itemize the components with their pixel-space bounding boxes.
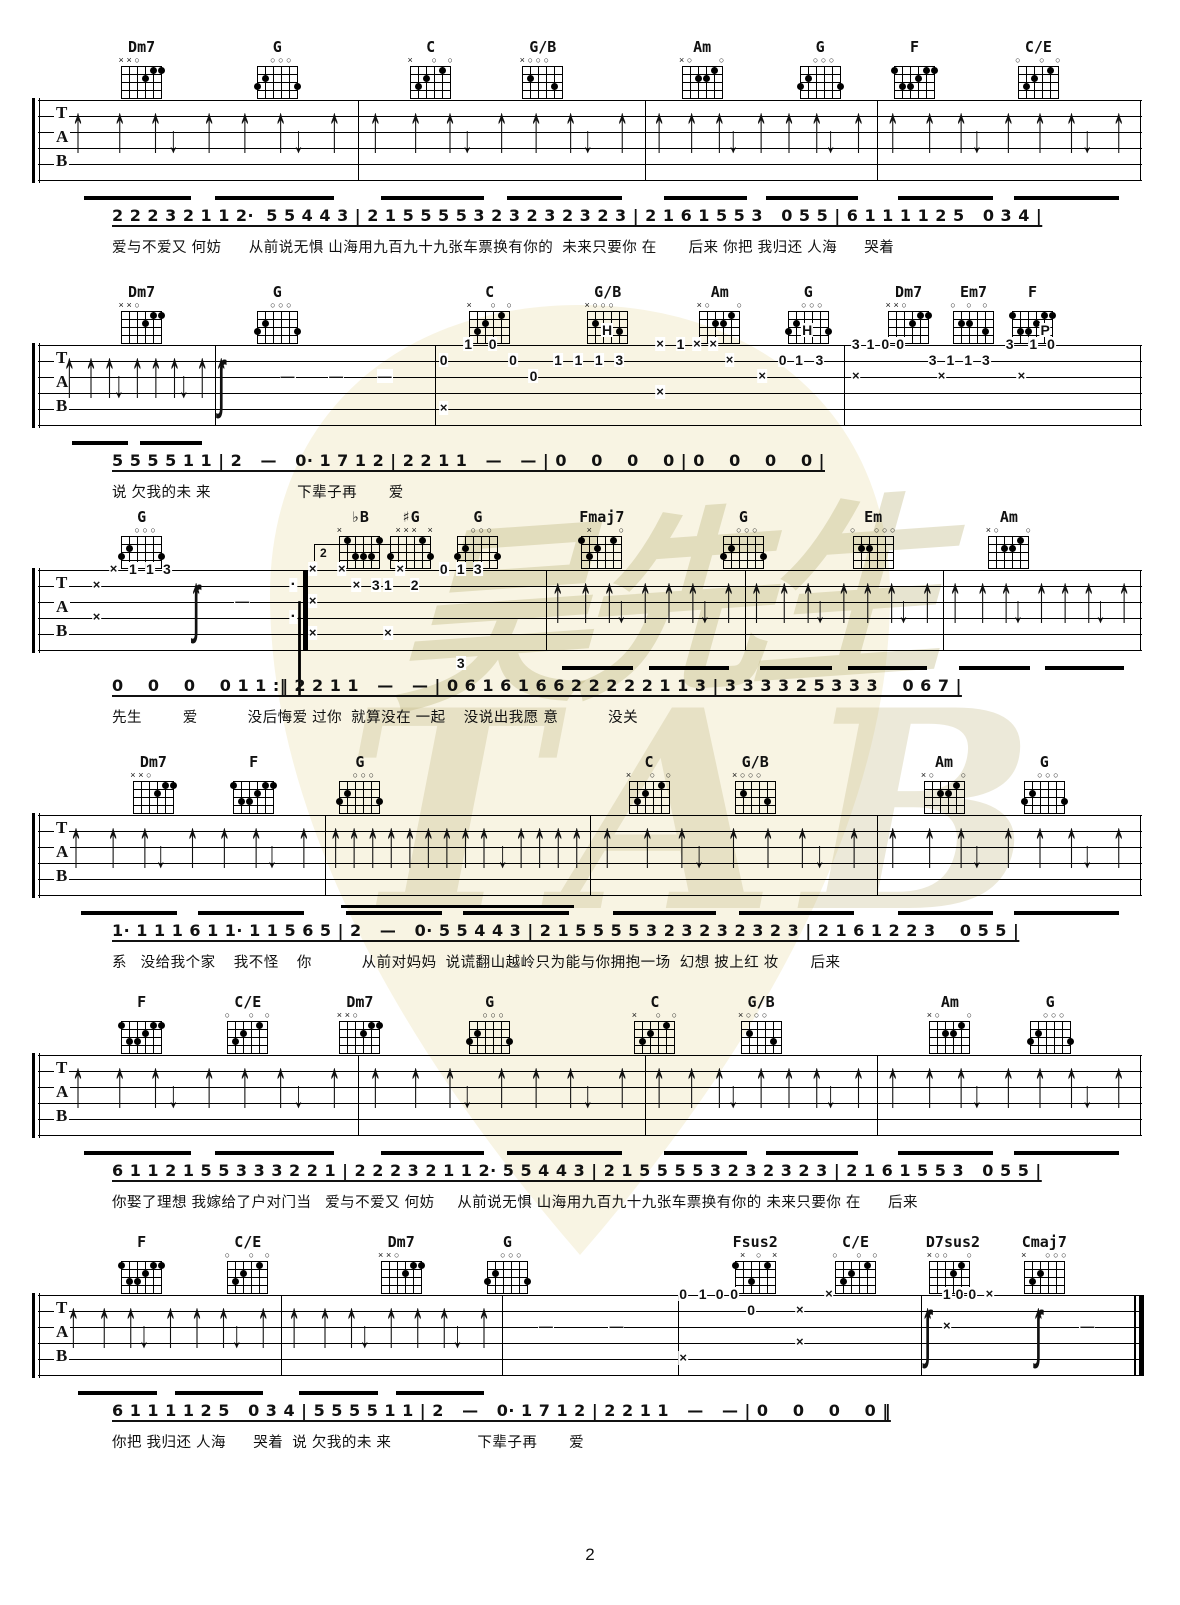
chord-name: G	[253, 285, 301, 300]
chord-dot	[958, 1022, 965, 1029]
chord-open-mark: ○	[737, 301, 742, 310]
strum-up-arrow: ↑	[921, 564, 934, 632]
fret-number: 1	[463, 337, 473, 351]
chord-dot	[925, 312, 932, 319]
chord-open-mark: ×	[632, 1011, 637, 1020]
chord-open-mark: ○	[656, 1011, 661, 1020]
chord-open-mark: ○	[516, 1251, 521, 1260]
chord-dot	[770, 1038, 777, 1045]
chord-open-mark: ○	[1053, 1251, 1058, 1260]
chord-open-mark: ○	[856, 1251, 861, 1260]
beam-line	[140, 441, 202, 445]
chord-open-mark: ×	[520, 56, 525, 65]
tab-clef-letter: B	[54, 867, 69, 885]
strum-up-arrow: ↑	[63, 339, 76, 407]
fret-number: 3	[981, 353, 991, 367]
beam-line	[649, 666, 728, 670]
fret-number: 0	[967, 1287, 977, 1301]
tab-system: FC/E○○○Dm7××○G○○○Fsus2×○×C/E○○○D7sus2×○○…	[0, 1235, 1180, 1475]
strum-up-arrow: ↑	[149, 94, 162, 162]
chord-dot	[256, 1262, 263, 1269]
chord-dot	[1041, 312, 1048, 319]
strum-down-arrow: ↓	[728, 118, 739, 162]
strum-up-arrow: ↑	[71, 94, 84, 162]
chord-open-mark: ○	[890, 526, 895, 535]
chord-name: G	[1020, 755, 1068, 770]
strum-up-arrow: ↑	[570, 809, 583, 877]
strum-up-arrow: ↑	[203, 94, 216, 162]
strum-up-arrow: ↑	[190, 1289, 203, 1357]
chord-open-mark: ○	[134, 301, 139, 310]
chord-open-mark: ○	[146, 771, 151, 780]
strum-up-arrow: ↑	[250, 809, 263, 877]
strum-up-arrow: ↑	[131, 339, 144, 407]
chord-diagram: C/E○○○	[832, 1235, 880, 1294]
beam-line	[396, 1391, 484, 1395]
strum-up-arrow: ↑	[495, 1049, 508, 1117]
strum-up-arrow: ↑	[802, 564, 815, 632]
chord-open-mark: ○	[431, 56, 436, 65]
strum-up-arrow: ↑	[409, 1049, 422, 1117]
chord-open-mark: ○	[286, 56, 291, 65]
strum-up-arrow: ↑	[238, 94, 251, 162]
strum-up-arrow: ↑	[885, 564, 898, 632]
beam-line	[463, 911, 569, 915]
strum-up-arrow: ↑	[852, 1049, 865, 1117]
chord-open-mark: ○	[506, 301, 511, 310]
dead-note-mark: ×	[757, 369, 767, 383]
strum-up-arrow: ↑	[71, 1049, 84, 1117]
staff-line	[38, 425, 1142, 426]
chord-name: F	[230, 755, 278, 770]
chord-dot	[610, 537, 617, 544]
chord-dot	[848, 1270, 855, 1277]
beam-line	[664, 196, 747, 200]
dead-note-mark: ×	[851, 369, 861, 383]
strum-down-arrow: ↓	[168, 118, 179, 162]
arpeggio-squiggle: ʃ	[193, 580, 200, 643]
chord-open-mark: ○	[874, 526, 879, 535]
chord-name: C/E	[224, 1235, 272, 1250]
tab-staff: TAB↑↑↑↓↑↑↑↓↑↑↑↑↓↑↑↑↓↑↑↑↑↓↑↑↑↓↑↑↑↑↓↑↑↑↓↑	[38, 100, 1142, 181]
strum-down-arrow: ↓	[616, 588, 627, 632]
strum-up-arrow: ↑	[685, 94, 698, 162]
chord-dot	[154, 790, 161, 797]
fret-number: 0	[778, 353, 788, 367]
chord-dot	[462, 545, 469, 552]
chord-dot	[931, 67, 938, 74]
strum-down-arrow: ↓	[898, 588, 909, 632]
strum-down-arrow: ↓	[359, 1313, 370, 1357]
strum-up-arrow: ↑	[69, 809, 82, 877]
strum-up-arrow: ↑	[164, 1289, 177, 1357]
staff-line	[38, 180, 1142, 181]
staff-line	[38, 1135, 1142, 1136]
chord-dot	[942, 1030, 949, 1037]
strum-up-arrow: ↑	[551, 564, 564, 632]
chord-dot	[439, 67, 446, 74]
strum-up-arrow: ↑	[459, 809, 472, 877]
chord-open-mark: ○	[487, 526, 492, 535]
tab-clef-letter: A	[54, 598, 70, 616]
chord-name: Dm7	[118, 285, 166, 300]
strum-up-arrow: ↑	[1002, 809, 1015, 877]
final-barline	[1134, 1295, 1144, 1376]
rest-dash: —	[328, 369, 344, 383]
strum-up-arrow: ↑	[366, 809, 379, 877]
strum-up-arrow: ↑	[653, 1049, 666, 1117]
chord-dot	[634, 798, 641, 805]
dead-note-mark: ×	[352, 578, 362, 592]
strum-up-arrow: ↑	[886, 1049, 899, 1117]
chord-dot	[1049, 312, 1056, 319]
fret-number: 1	[942, 1287, 952, 1301]
chord-open-mark: ○	[1059, 1011, 1064, 1020]
fret-number: 1	[676, 337, 686, 351]
chord-dot	[592, 320, 599, 327]
strum-up-arrow: ↑	[124, 1289, 137, 1357]
page-number: 2	[585, 1545, 594, 1565]
chord-dot	[958, 320, 965, 327]
chord-name: G	[796, 40, 844, 55]
beam-line	[898, 1151, 993, 1155]
chord-open-mark: ×	[986, 526, 991, 535]
strum-up-arrow: ↑	[1065, 809, 1078, 877]
strum-up-arrow: ↑	[113, 1049, 126, 1117]
strum-up-arrow: ↑	[1082, 564, 1095, 632]
chord-open-mark: ○	[935, 1251, 940, 1260]
chord-dot	[1047, 67, 1054, 74]
chord-dot	[1017, 537, 1024, 544]
tab-clef-letter: B	[54, 1107, 69, 1125]
chord-open-mark: ○	[756, 771, 761, 780]
chord-dot	[950, 1030, 957, 1037]
chord-open-mark: ○	[1045, 771, 1050, 780]
fret-number: 1	[946, 353, 956, 367]
staff-line	[38, 1343, 1142, 1344]
tab-clef-letter: T	[54, 104, 69, 122]
rest-dash: —	[234, 594, 250, 608]
chord-open-mark: ×	[138, 771, 143, 780]
chord-dot	[647, 1030, 654, 1037]
strum-up-arrow: ↑	[755, 1049, 768, 1117]
chord-open-mark: ○	[270, 56, 275, 65]
chord-name: Dm7	[129, 755, 177, 770]
chord-dot	[1009, 545, 1016, 552]
chord-open-mark: ×	[738, 1011, 743, 1020]
strum-up-arrow: ↑	[616, 94, 629, 162]
tab-clef-letter: B	[54, 152, 69, 170]
strum-up-arrow: ↑	[478, 809, 491, 877]
chord-dot	[950, 1270, 957, 1277]
beam-line	[664, 1151, 747, 1155]
chord-open-mark: ×	[403, 526, 408, 535]
chord-dot	[492, 1270, 499, 1277]
chord-name: C/E	[224, 995, 272, 1010]
beam-line	[562, 666, 634, 670]
strum-down-arrow: ↓	[825, 1073, 836, 1117]
chord-open-mark: ×	[126, 301, 131, 310]
strum-up-arrow: ↑	[203, 1049, 216, 1117]
strum-up-arrow: ↑	[329, 809, 342, 877]
lyrics-line: 系 没给我个家 我不怪 你 从前对妈妈 说谎翻山越岭只为能与你拥抱一场 幻想 披…	[112, 951, 841, 972]
strum-up-arrow: ↑	[861, 564, 874, 632]
strum-up-arrow: ↑	[217, 1289, 230, 1357]
dead-note-mark: ×	[824, 1287, 834, 1301]
strum-up-arrow: ↑	[478, 1289, 491, 1357]
chord-name: C/E	[1014, 40, 1062, 55]
strum-up-arrow: ↑	[949, 564, 962, 632]
strum-up-arrow: ↑	[495, 94, 508, 162]
tab-clef-letter: B	[54, 622, 69, 640]
strum-down-arrow: ↓	[1082, 1073, 1093, 1117]
strum-up-arrow: ↑	[403, 809, 416, 877]
chord-dot	[793, 320, 800, 327]
chord-open-mark: ○	[967, 1251, 972, 1260]
rest-dash: —	[280, 369, 296, 383]
measure-barline	[645, 1055, 646, 1136]
chord-name: G	[454, 510, 502, 525]
tab-system: G○○○♭B×♯G××××G○○○Fmaj7×○G○○○Em○○○○Am×○○T…	[0, 510, 1180, 750]
chord-open-mark: ○	[744, 526, 749, 535]
chord-name: G	[336, 755, 384, 770]
chord-open-mark: ○	[498, 1011, 503, 1020]
staff-line	[38, 1375, 1142, 1376]
chord-open-mark: ×	[1021, 1251, 1026, 1260]
chord-dot	[1001, 545, 1008, 552]
chord-dot	[695, 75, 702, 82]
chord-dot	[262, 320, 269, 327]
chord-dot	[825, 328, 832, 335]
chord-dot	[402, 1270, 409, 1277]
strum-up-arrow: ↑	[288, 1289, 301, 1357]
strum-down-arrow: ↓	[462, 118, 473, 162]
fret-number: 0	[729, 1287, 739, 1301]
chord-open-mark: ×	[626, 771, 631, 780]
strum-up-arrow: ↑	[533, 809, 546, 877]
strum-down-arrow: ↓	[293, 1073, 304, 1117]
fret-number: 1	[553, 353, 563, 367]
measure-barline	[358, 1055, 359, 1136]
beam-line	[848, 666, 927, 670]
fret-number: 0	[439, 562, 449, 576]
chord-grid: ×○×	[735, 1261, 776, 1294]
chord-open-mark: ○	[935, 1011, 940, 1020]
chord-open-mark: ×	[927, 1011, 932, 1020]
tab-staff: TAB×××113↑ʃ—··×××××31×2×0133↑↑↑↓↑↑↑↓↑↑↑↑…	[38, 570, 1142, 651]
chord-open-mark: ○	[265, 1251, 270, 1260]
strum-up-arrow: ↑	[601, 809, 614, 877]
chord-open-mark: ○	[1037, 771, 1042, 780]
fret-number: 0	[529, 369, 539, 383]
chord-name: ♭B	[336, 510, 384, 525]
chord-open-mark: ×	[740, 1251, 745, 1260]
strum-down-arrow: ↓	[452, 1313, 463, 1357]
chord-dot	[917, 312, 924, 319]
chord-dot	[937, 790, 944, 797]
chord-open-mark: ○	[1039, 56, 1044, 65]
chord-name: C	[625, 755, 673, 770]
measure-barline	[745, 570, 746, 651]
chord-open-mark: ○	[1055, 56, 1060, 65]
chord-open-mark: ○	[490, 301, 495, 310]
chord-diagram: Fsus2×○×	[731, 1235, 779, 1294]
chord-open-mark: ×	[732, 771, 737, 780]
beam-line	[381, 196, 484, 200]
strum-up-arrow: ↑	[257, 1289, 270, 1357]
measure-barline	[844, 345, 845, 426]
measure-barline	[943, 570, 944, 651]
chord-dot	[1035, 1030, 1042, 1037]
fret-number: 0	[1046, 337, 1056, 351]
repeat-dot: ·	[290, 578, 297, 592]
chord-dot	[1037, 1270, 1044, 1277]
strum-up-arrow: ↑	[837, 564, 850, 632]
strum-up-arrow: ↑	[603, 564, 616, 632]
strum-up-arrow: ↑	[369, 1049, 382, 1117]
strum-down-arrow: ↓	[178, 363, 189, 407]
chord-open-mark: ○	[872, 1251, 877, 1260]
strum-down-arrow: ↓	[267, 833, 278, 877]
strum-up-arrow: ↑	[923, 809, 936, 877]
strum-up-arrow: ↑	[579, 564, 592, 632]
chord-dot	[142, 320, 149, 327]
chord-open-mark: ○	[508, 1251, 513, 1260]
chord-dot	[419, 537, 426, 544]
strum-up-arrow: ↑	[810, 94, 823, 162]
chord-name: Am	[926, 995, 974, 1010]
tab-staff: TAB↑↑↑↓↑↑↑↓↑↑↑↑↑↑↑↑↑↑↓↑↑↑↑↑↑↑↓↑↑↑↓↑↑↑↑↓↑…	[38, 815, 1142, 896]
beam-line	[81, 911, 176, 915]
lyrics-line: 爱与不爱又 何妨 从前说无惧 山海用九百九十九张车票换有你的 未来只要你 在 后…	[112, 236, 894, 257]
chord-dot	[915, 75, 922, 82]
strum-up-arrow: ↑	[653, 94, 666, 162]
strum-up-arrow: ↑	[852, 94, 865, 162]
tab-staff: TAB↑↑↑↓↑↑↑↓↑↑ʃ———01000×1113H×1×××××013H3…	[38, 345, 1142, 426]
chord-dot	[1025, 328, 1032, 335]
chord-dot	[840, 1278, 847, 1285]
chord-open-mark: ×	[467, 301, 472, 310]
chord-name: Dm7	[118, 40, 166, 55]
chord-name: G/B	[519, 40, 567, 55]
dead-note-mark: ×	[942, 1319, 952, 1333]
dead-note-mark: ×	[308, 562, 318, 576]
strum-up-arrow: ↑	[149, 339, 162, 407]
strum-down-arrow: ↓	[814, 833, 825, 877]
chord-open-mark: ○	[961, 771, 966, 780]
strum-up-arrow: ↑	[319, 1289, 332, 1357]
chord-dot	[474, 1030, 481, 1037]
chord-open-mark: ○	[882, 526, 887, 535]
chord-open-mark: ○	[809, 301, 814, 310]
chord-dot	[474, 328, 481, 335]
lyrics-line: 你娶了理想 我嫁给了户对门当 爱与不爱又 何妨 从前说无惧 山海用九百九十九张车…	[112, 1191, 918, 1212]
melody-numbers-line: 6 1 1 2 1 5 5 3 3 3 2 2 1 | 2 2 2 3 2 1 …	[112, 1161, 1042, 1180]
strum-up-arrow: ↑	[761, 809, 774, 877]
chord-name: Cmaj7	[1020, 1235, 1068, 1250]
strum-down-arrow: ↓	[138, 1313, 149, 1357]
chord-open-mark: ○	[801, 301, 806, 310]
fret-number: 0	[439, 353, 449, 367]
chord-dot	[118, 1262, 125, 1269]
strum-up-arrow: ↑	[639, 564, 652, 632]
chord-open-mark: ×	[126, 56, 131, 65]
chord-dot	[1021, 798, 1028, 805]
chord-open-mark: ○	[829, 56, 834, 65]
chord-dot	[418, 1262, 425, 1269]
chord-dot	[720, 320, 727, 327]
beam-line	[898, 911, 993, 915]
chord-dot	[170, 782, 177, 789]
strum-up-arrow: ↑	[113, 94, 126, 162]
strum-up-arrow: ↑	[274, 1049, 287, 1117]
chord-open-mark: ×	[427, 526, 432, 535]
strum-down-arrow: ↓	[1082, 118, 1093, 162]
chord-open-mark: ○	[672, 1011, 677, 1020]
measure-barline	[1140, 100, 1141, 181]
chord-dot	[126, 1038, 133, 1045]
chord-open-mark: ○	[471, 526, 476, 535]
chord-name: Am	[678, 40, 726, 55]
chord-open-mark: ○	[666, 771, 671, 780]
chord-dot	[527, 75, 534, 82]
beam-line	[346, 911, 441, 915]
chord-open-mark: ○	[832, 1251, 837, 1260]
staff-line	[38, 1327, 1142, 1328]
chord-dot	[748, 1278, 755, 1285]
chord-dot	[118, 1022, 125, 1029]
strum-up-arrow: ↑	[727, 809, 740, 877]
chord-open-mark: ○	[361, 771, 366, 780]
strum-up-arrow: ↑	[564, 94, 577, 162]
tab-clef-letter: A	[54, 1083, 70, 1101]
fret-number: 3	[1005, 337, 1015, 351]
chord-open-mark: ○	[752, 526, 757, 535]
tab-staff: TAB↑↑↑↓↑↑↑↓↑↑↑↑↓↑↑↑↓↑↑↑↑↓↑↑↑↓↑↑↑↑↓↑↑↑↓↑	[38, 1055, 1142, 1136]
fret-number: 0	[508, 353, 518, 367]
fret-number: 3	[815, 353, 825, 367]
chord-dot	[256, 1022, 263, 1029]
strum-up-arrow: ↑	[1065, 1049, 1078, 1117]
chord-open-mark: ○	[1053, 771, 1058, 780]
chord-dot	[658, 782, 665, 789]
strum-up-arrow: ↑	[107, 809, 120, 877]
chord-dot	[524, 1278, 531, 1285]
chord-dot	[551, 83, 558, 90]
strum-up-arrow: ↑	[713, 1049, 726, 1117]
fret-number: 3	[371, 578, 381, 592]
strum-up-arrow: ↑	[713, 94, 726, 162]
chord-grid: ○○○	[835, 1261, 876, 1294]
strum-up-arrow: ↑	[515, 809, 528, 877]
dead-note-mark: ×	[708, 337, 718, 351]
strum-up-arrow: ↑	[1112, 1049, 1125, 1117]
fret-number: 2	[410, 578, 420, 592]
strum-up-arrow: ↑	[385, 1289, 398, 1357]
chord-dot	[376, 1022, 383, 1029]
chord-open-mark: ○	[967, 1011, 972, 1020]
chord-open-mark: ×	[927, 1251, 932, 1260]
strum-down-arrow: ↓	[1095, 588, 1106, 632]
measure-barline	[502, 1295, 503, 1376]
fret-number: 0	[488, 337, 498, 351]
fret-number: 0	[895, 337, 905, 351]
chord-dot	[858, 545, 865, 552]
chord-open-mark: ○	[1026, 526, 1031, 535]
chord-dot	[616, 328, 623, 335]
chord-dot	[923, 67, 930, 74]
chord-open-mark: ○	[1045, 1251, 1050, 1260]
